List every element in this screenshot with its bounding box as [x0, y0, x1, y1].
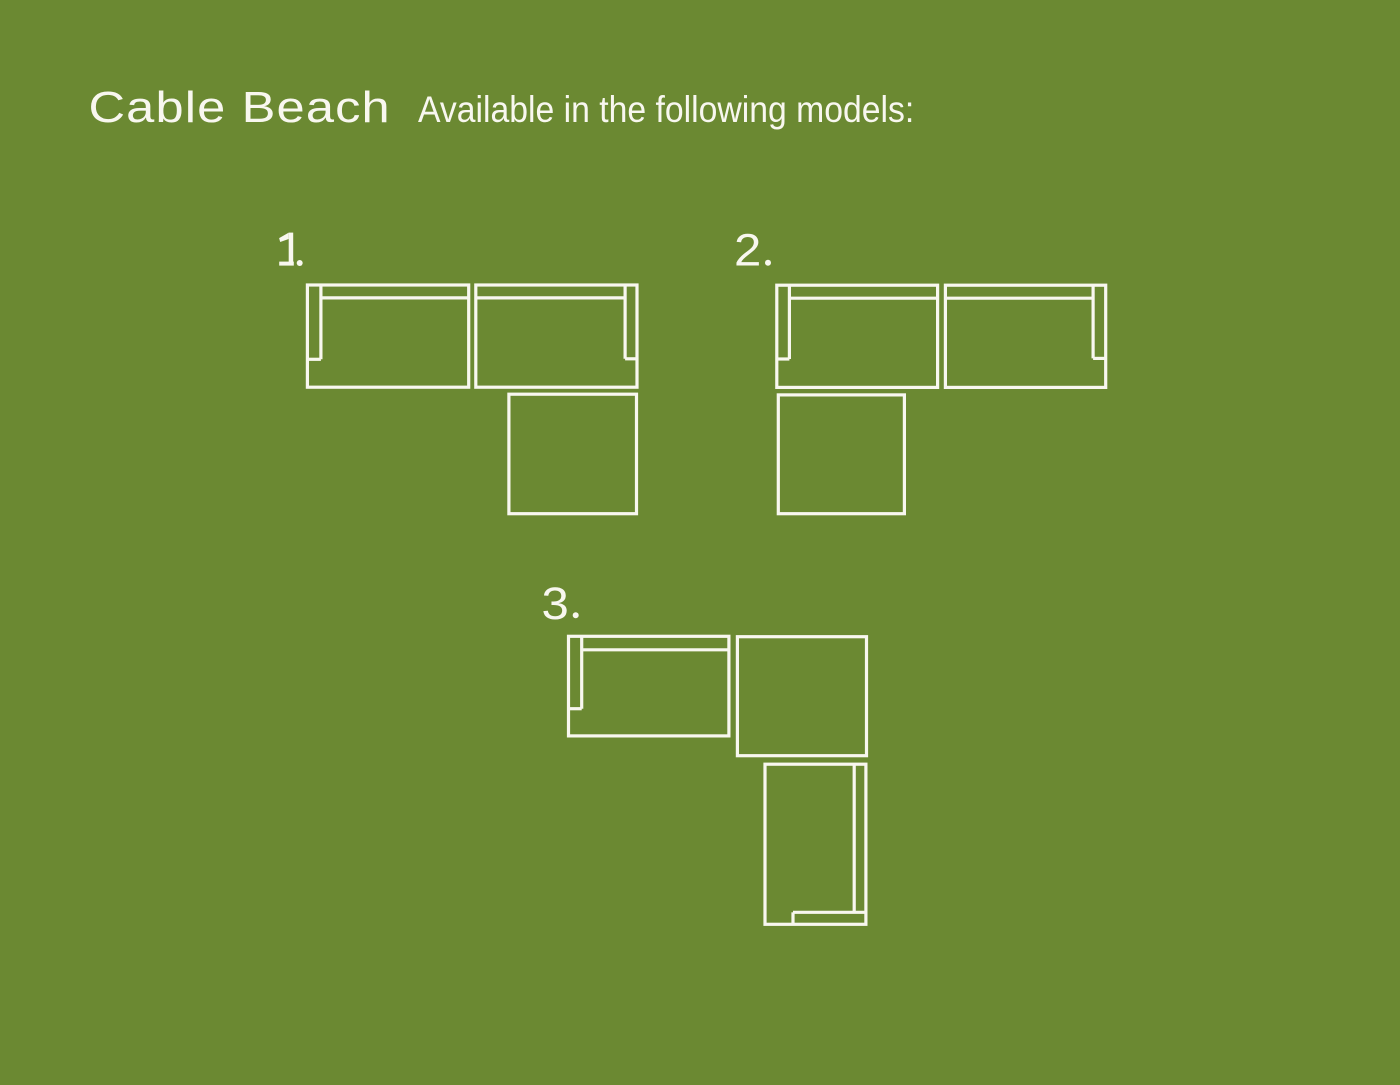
svg-text:2: 2 — [734, 225, 761, 276]
svg-text:Available in the following mod: Available in the following models: — [418, 89, 914, 131]
svg-text:Cable Beach: Cable Beach — [89, 83, 391, 132]
svg-text:3: 3 — [542, 579, 569, 630]
